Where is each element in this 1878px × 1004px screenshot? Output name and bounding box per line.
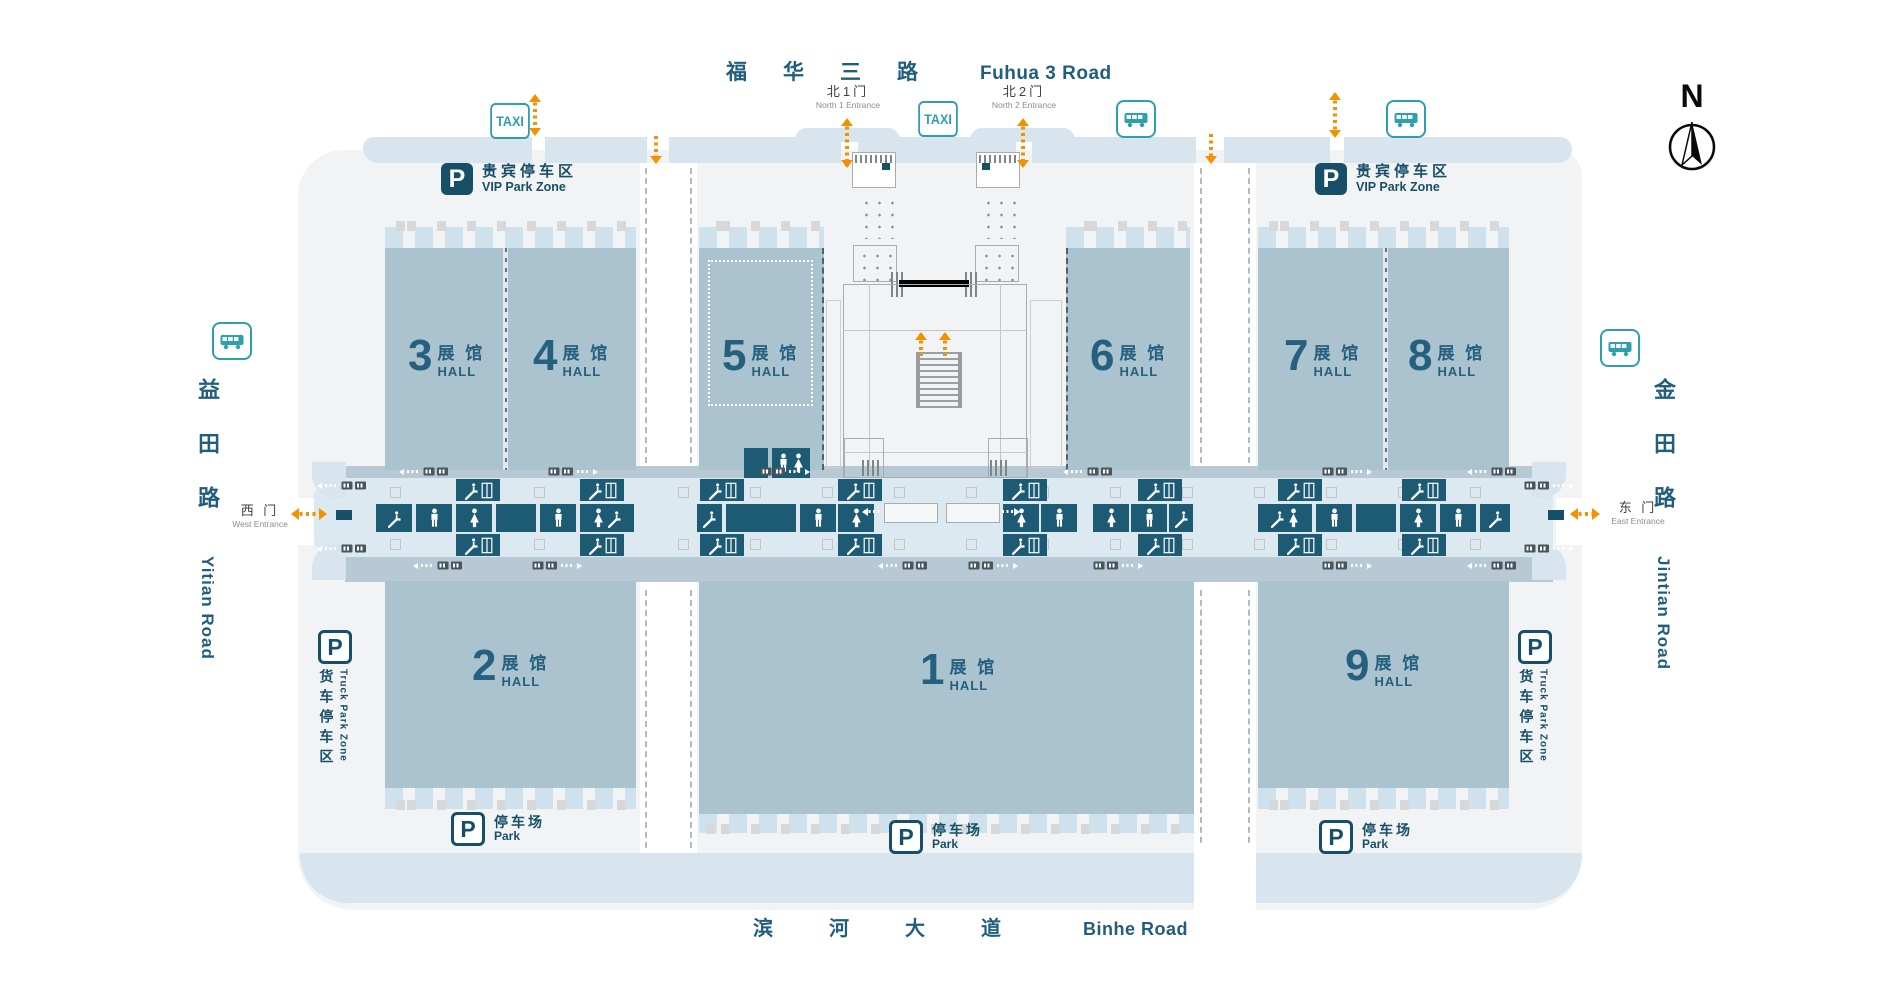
truck-zone-en: Truck Park Zone — [1537, 669, 1548, 769]
male-restroom-icon — [1440, 504, 1476, 532]
corridor-column-marker — [822, 539, 833, 550]
vip-park-zone-sign: P贵宾停车区VIP Park Zone — [1315, 163, 1451, 195]
hall-number: 4 — [533, 338, 557, 374]
escalator-icon — [376, 504, 412, 532]
hall-divider — [503, 248, 508, 470]
road-label-top: 福华三路 Fuhua 3 Road — [726, 56, 1112, 86]
corridor-column-marker — [1326, 539, 1337, 550]
park-lot-sign: P停车场Park — [451, 812, 545, 846]
white-arrow-icon — [577, 563, 585, 569]
taxi-stand-sign: TAXI — [490, 103, 530, 139]
shuttle-bus-icon — [1524, 544, 1577, 553]
arrow-head — [1014, 508, 1024, 516]
arrow-head — [285, 508, 299, 520]
parking-icon: P — [1518, 630, 1552, 664]
corridor-column-marker — [1110, 487, 1121, 498]
male-restroom-icon — [1131, 504, 1167, 532]
hall-number: 7 — [1284, 338, 1308, 374]
road-top-segment — [1224, 137, 1330, 163]
entrance-north2-zh: 北2门 — [1003, 84, 1045, 100]
shuttle-bus-icon — [548, 467, 601, 476]
white-arrow-icon — [875, 563, 883, 569]
strip-dash — [1200, 168, 1202, 463]
hall-label-7: 7展 馆HALL — [1284, 338, 1361, 379]
entrance-north2: 北2门 North 2 Entrance — [978, 84, 1070, 110]
vip-zone-zh: 贵宾停车区 — [482, 163, 577, 180]
corridor-column-marker — [534, 487, 545, 498]
hall-name-en: HALL — [562, 364, 610, 379]
service-strip — [1194, 163, 1256, 466]
entrance-west-en: West Entrance — [232, 519, 288, 529]
facility-tile — [1356, 504, 1396, 532]
hall-1 — [699, 581, 1194, 814]
arrow-head — [1329, 86, 1341, 100]
orange-arrow — [1209, 134, 1213, 162]
building-wing — [1030, 300, 1062, 468]
female-restroom-icon — [838, 504, 874, 532]
shuttle-bus-icon — [760, 467, 813, 476]
corridor-column-marker — [390, 539, 401, 550]
corridor-column-marker — [750, 487, 761, 498]
hall-name-zh: 展 馆 — [1313, 339, 1361, 364]
orange-arrow — [919, 334, 923, 356]
escalator-elevator-icon — [1278, 534, 1322, 556]
white-arrow — [1002, 510, 1018, 513]
shuttle-bus-icon — [314, 544, 367, 553]
escalator-elevator-icon — [700, 479, 744, 501]
corridor-column-marker — [1254, 539, 1265, 550]
escalator-elevator-icon — [1003, 479, 1047, 501]
arrow-head — [1592, 508, 1606, 520]
white-arrow-icon — [1367, 563, 1375, 569]
hall-name-zh: 展 馆 — [501, 649, 549, 674]
dock-marker-row — [699, 221, 824, 231]
hall-name-en: HALL — [437, 364, 485, 379]
escalator-elevator-icon — [1402, 534, 1446, 556]
orange-arrow — [845, 120, 849, 166]
hall-label-4: 4展 馆HALL — [533, 338, 610, 379]
corridor-column-marker — [1470, 487, 1481, 498]
bus-stop-icon — [1116, 100, 1156, 138]
female-restroom-icon — [1093, 504, 1129, 532]
escalator-elevator-icon — [700, 534, 744, 556]
shuttle-bus-icon — [1093, 561, 1146, 570]
male-restroom-icon — [1316, 504, 1352, 532]
entrance-west: 西 门 West Entrance — [228, 503, 292, 529]
truck-park-zone-sign: P货车停车区Truck Park Zone — [1518, 630, 1552, 769]
park-zh: 停车场 — [932, 822, 983, 838]
male-restroom-icon — [800, 504, 836, 532]
white-arrow — [864, 510, 880, 513]
hall-label-5: 5展 馆HALL — [722, 338, 799, 379]
compass-icon — [1664, 114, 1720, 172]
arrow-head — [1017, 160, 1029, 174]
arrow-head — [1205, 156, 1217, 170]
escalator-elevator-icon — [580, 534, 624, 556]
road-top-en: Fuhua 3 Road — [980, 63, 1112, 85]
white-arrow-icon — [1013, 563, 1021, 569]
hall-number: 2 — [472, 648, 496, 684]
corridor-column-marker — [1182, 539, 1193, 550]
truck-zone-en: Truck Park Zone — [337, 669, 348, 769]
hall-number: 5 — [722, 338, 746, 374]
corridor-column-marker — [894, 487, 905, 498]
white-arrow-icon — [314, 546, 322, 552]
vip-park-zone-sign: P贵宾停车区VIP Park Zone — [441, 163, 577, 195]
white-arrow-icon — [1138, 563, 1146, 569]
entrance-east-en: East Entrance — [1611, 516, 1664, 526]
escalator-female-restroom-icon — [1258, 504, 1312, 532]
building-unit — [882, 163, 890, 170]
orange-arrow — [943, 334, 947, 356]
white-arrow-icon — [314, 483, 322, 489]
male-restroom-icon — [416, 504, 452, 532]
shuttle-bus-icon — [314, 481, 367, 490]
strip-dash — [645, 168, 647, 463]
park-en: Park — [1362, 838, 1413, 852]
shuttle-bus-icon — [1060, 467, 1113, 476]
orange-arrow — [1021, 120, 1025, 166]
escalator-elevator-icon — [456, 534, 500, 556]
arrow-head — [939, 326, 951, 340]
dock-marker-row — [385, 221, 636, 231]
road-top-segment — [363, 137, 532, 163]
escalator-elevator-icon — [580, 479, 624, 501]
escalator-elevator-icon — [1138, 534, 1182, 556]
corridor-column-marker — [966, 487, 977, 498]
building-hatch — [862, 460, 882, 476]
corridor-column-marker — [894, 539, 905, 550]
white-arrow-icon — [410, 563, 418, 569]
male-restroom-icon — [540, 504, 576, 532]
shuttle-bus-icon — [1464, 467, 1517, 476]
park-en: Park — [494, 830, 545, 844]
arrow-head — [529, 128, 541, 142]
road-bottom-zh: 滨河大道 — [753, 912, 1057, 941]
dock-marker-row — [1258, 221, 1509, 231]
orange-arrow — [1333, 94, 1337, 136]
shuttle-bus-icon — [410, 561, 463, 570]
white-arrow-icon — [1060, 469, 1068, 475]
entrance-north1-en: North 1 Entrance — [816, 100, 880, 110]
bus-stop-icon — [1386, 100, 1426, 138]
arrow-head — [319, 508, 333, 520]
road-label-bottom: 滨河大道 Binhe Road — [753, 912, 1188, 941]
orange-arrow — [293, 512, 325, 516]
hall-name-zh: 展 馆 — [562, 339, 610, 364]
facility-tile — [726, 504, 796, 532]
arrow-head — [841, 112, 853, 126]
park-zh: 停车场 — [494, 814, 545, 830]
strip-dash — [1248, 168, 1250, 463]
arrow-head — [858, 508, 868, 516]
road-label-left: 益田路 Yitian Road — [196, 378, 218, 660]
park-lot-sign: P停车场Park — [889, 820, 983, 854]
building-hatch — [990, 460, 1010, 476]
escalator-elevator-icon — [1138, 479, 1182, 501]
hall-label-1: 1展 馆HALL — [920, 652, 997, 693]
entrance-north2-en: North 2 Entrance — [992, 100, 1056, 110]
dock-marker-row — [1066, 221, 1190, 231]
corridor-column-marker — [678, 487, 689, 498]
road-bottom — [300, 853, 1582, 903]
shuttle-vehicle — [946, 503, 1000, 523]
building-wing — [826, 300, 841, 468]
corridor-column-marker — [1254, 487, 1265, 498]
shuttle-bus-icon — [1322, 561, 1375, 570]
road-right-en: Jintian Road — [1653, 556, 1673, 670]
south-drive-gap — [1199, 845, 1256, 907]
service-strip — [640, 163, 697, 466]
entrance-north1: 北1门 North 1 Entrance — [802, 84, 894, 110]
road-top-segment — [545, 137, 647, 163]
hall-name-zh: 展 馆 — [1437, 339, 1485, 364]
shuttle-vehicle — [884, 503, 938, 523]
parking-icon: P — [1315, 163, 1347, 195]
west-gate-bar — [336, 510, 352, 520]
vip-zone-zh: 贵宾停车区 — [1356, 163, 1451, 180]
hall-name-zh: 展 馆 — [1119, 339, 1167, 364]
escalator-elevator-icon — [1278, 479, 1322, 501]
dock-marker-row — [1258, 800, 1509, 810]
taxi-label: TAXI — [924, 111, 952, 127]
arrow-head — [650, 156, 662, 170]
column-grid — [856, 193, 894, 239]
white-arrow-icon — [593, 469, 601, 475]
entrance-west-zh: 西 门 — [241, 503, 280, 519]
corridor-column-marker — [822, 487, 833, 498]
building-unit — [982, 163, 990, 170]
hall-name-zh: 展 馆 — [1374, 649, 1422, 674]
column-grid — [978, 193, 1016, 239]
escalator-elevator-icon — [1003, 534, 1047, 556]
entrance-east: 东 门 East Entrance — [1602, 500, 1674, 526]
hall-name-zh: 展 馆 — [437, 339, 485, 364]
hall-number: 8 — [1408, 338, 1432, 374]
hall-name-zh: 展 馆 — [949, 653, 997, 678]
building-hatch — [855, 155, 893, 163]
hall-name-en: HALL — [1437, 364, 1485, 379]
strip-dash — [690, 168, 692, 463]
parking-icon: P — [889, 820, 923, 854]
hall-name-en: HALL — [1374, 674, 1422, 689]
corridor-column-marker — [1470, 539, 1481, 550]
corridor-column-marker — [678, 539, 689, 550]
corridor-column-marker — [534, 539, 545, 550]
shuttle-bus-icon — [1524, 481, 1577, 490]
hall-name-en: HALL — [501, 674, 549, 689]
parking-icon: P — [441, 163, 473, 195]
hall-name-zh: 展 馆 — [751, 339, 799, 364]
white-arrow-icon — [1569, 546, 1577, 552]
strip-dash — [645, 590, 647, 848]
arrow-head — [841, 160, 853, 174]
hall-name-en: HALL — [1313, 364, 1361, 379]
corridor-column-marker — [1110, 539, 1121, 550]
road-top-zh: 福华三路 — [726, 56, 954, 86]
shuttle-bus-icon — [532, 561, 585, 570]
shuttle-bus-icon — [968, 561, 1021, 570]
escalator-icon — [1169, 504, 1193, 532]
hall-label-8: 8展 馆HALL — [1408, 338, 1485, 379]
escalator-icon — [1480, 504, 1510, 532]
hall-label-6: 6展 馆HALL — [1090, 338, 1167, 379]
orange-arrow — [654, 136, 658, 162]
parking-icon: P — [1319, 820, 1353, 854]
taxi-stand-sign: TAXI — [918, 101, 958, 137]
road-left-zh: 益田路 — [196, 378, 218, 540]
entrance-east-zh: 东 门 — [1619, 500, 1658, 516]
corridor-column-marker — [390, 487, 401, 498]
north-compass: N — [1664, 80, 1720, 172]
escalator-elevator-icon — [838, 479, 882, 501]
orange-arrow — [1572, 512, 1598, 516]
parking-icon: P — [318, 630, 352, 664]
north-label: N — [1680, 80, 1703, 112]
building-block — [975, 245, 1019, 282]
arrow-head — [1329, 130, 1341, 144]
road-bottom-en: Binhe Road — [1083, 919, 1188, 940]
shuttle-bus-icon — [1322, 467, 1375, 476]
hall-number: 1 — [920, 652, 944, 688]
park-lot-sign: P停车场Park — [1319, 820, 1413, 854]
hall-label-9: 9展 馆HALL — [1345, 648, 1422, 689]
park-en: Park — [932, 838, 983, 852]
shuttle-bus-icon — [396, 467, 449, 476]
corridor-column-marker — [750, 539, 761, 550]
arrow-head — [1017, 112, 1029, 126]
white-arrow-icon — [1367, 469, 1375, 475]
escalator-elevator-icon — [456, 479, 500, 501]
vip-zone-en: VIP Park Zone — [1356, 180, 1451, 194]
female-restroom-icon — [456, 504, 492, 532]
escalator-elevator-icon — [1402, 479, 1446, 501]
road-top-segment — [1344, 137, 1572, 163]
shuttle-bus-icon — [875, 561, 928, 570]
hall-divider — [1383, 248, 1388, 470]
white-arrow-icon — [396, 469, 404, 475]
vip-zone-en: VIP Park Zone — [482, 180, 577, 194]
hall-name-en: HALL — [949, 678, 997, 693]
road-left-en: Yitian Road — [197, 556, 217, 660]
dock-marker-row — [385, 800, 636, 810]
bus-stop-icon — [212, 322, 252, 360]
corridor-column-marker — [966, 539, 977, 550]
entrance-north1-zh: 北1门 — [827, 84, 869, 100]
service-strip — [640, 582, 697, 853]
escalator-bank — [916, 352, 962, 408]
white-arrow-icon — [1464, 563, 1472, 569]
east-gate-bar — [1548, 510, 1564, 520]
hall-name-en: HALL — [751, 364, 799, 379]
building-hatch — [979, 155, 1017, 163]
shuttle-bus-icon — [1464, 561, 1517, 570]
taxi-label: TAXI — [496, 113, 524, 129]
female-restroom-icon — [1400, 504, 1436, 532]
hall-label-2: 2展 馆HALL — [472, 648, 549, 689]
strip-dash — [690, 590, 692, 848]
female-restroom-escalator-icon — [580, 504, 634, 532]
park-zh: 停车场 — [1362, 822, 1413, 838]
arrow-head — [1564, 508, 1578, 520]
exhibition-center-map: 福华三路 Fuhua 3 Road 滨河大道 Binhe Road 益田路 Yi… — [0, 0, 1878, 1004]
orange-arrow — [533, 96, 537, 134]
truck-park-zone-sign: P货车停车区Truck Park Zone — [318, 630, 352, 769]
corridor-column-marker — [1326, 487, 1337, 498]
corridor-column-marker — [1182, 487, 1193, 498]
white-arrow-icon — [1569, 483, 1577, 489]
white-arrow-icon — [1464, 469, 1472, 475]
building-line — [843, 330, 1027, 331]
escalator-elevator-icon — [838, 534, 882, 556]
hall-number: 3 — [408, 338, 432, 374]
truck-zone-zh: 货车停车区 — [318, 669, 333, 769]
hall-number: 9 — [1345, 648, 1369, 684]
arrow-head — [915, 326, 927, 340]
male-restroom-icon — [1041, 504, 1077, 532]
white-arrow-icon — [805, 469, 813, 475]
facility-tile — [496, 504, 536, 532]
hall-name-en: HALL — [1119, 364, 1167, 379]
bus-stop-icon — [1600, 329, 1640, 367]
hall-number: 6 — [1090, 338, 1114, 374]
truck-zone-zh: 货车停车区 — [1518, 669, 1533, 769]
parking-icon: P — [451, 812, 485, 846]
escalator-icon — [697, 504, 722, 532]
hall-label-3: 3展 馆HALL — [408, 338, 485, 379]
arrow-head — [529, 88, 541, 102]
